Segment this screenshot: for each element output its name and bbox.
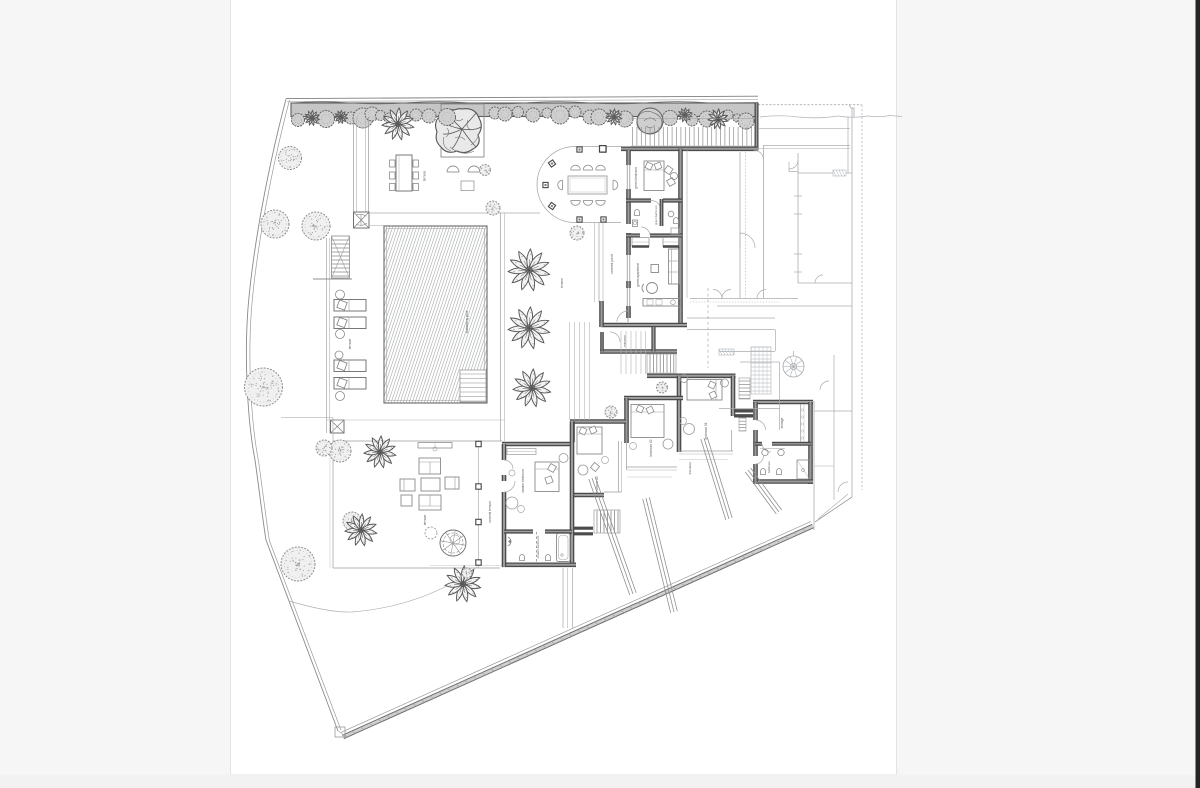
svg-text:master bathroom: master bathroom bbox=[536, 535, 540, 558]
svg-text:green bathroom: green bathroom bbox=[654, 204, 658, 224]
svg-text:terrace: terrace bbox=[560, 278, 564, 288]
svg-text:covered terrace: covered terrace bbox=[488, 501, 492, 523]
svg-text:green bedroom: green bedroom bbox=[634, 167, 638, 189]
svg-text:distributor: distributor bbox=[688, 462, 692, 475]
svg-text:terrace: terrace bbox=[423, 171, 427, 182]
svg-text:covered porch: covered porch bbox=[610, 254, 614, 274]
svg-text:bedroom 01: bedroom 01 bbox=[704, 422, 708, 439]
svg-text:swimming pool: swimming pool bbox=[465, 311, 469, 334]
svg-text:bedroom 02: bedroom 02 bbox=[649, 439, 653, 456]
svg-text:storage: storage bbox=[780, 417, 784, 428]
svg-text:bathroom: bathroom bbox=[767, 461, 771, 473]
svg-text:master bedroom: master bedroom bbox=[521, 469, 525, 493]
svg-text:terrace: terrace bbox=[423, 515, 427, 526]
svg-text:green apartment: green apartment bbox=[636, 263, 640, 287]
svg-text:terrace: terrace bbox=[348, 339, 352, 350]
